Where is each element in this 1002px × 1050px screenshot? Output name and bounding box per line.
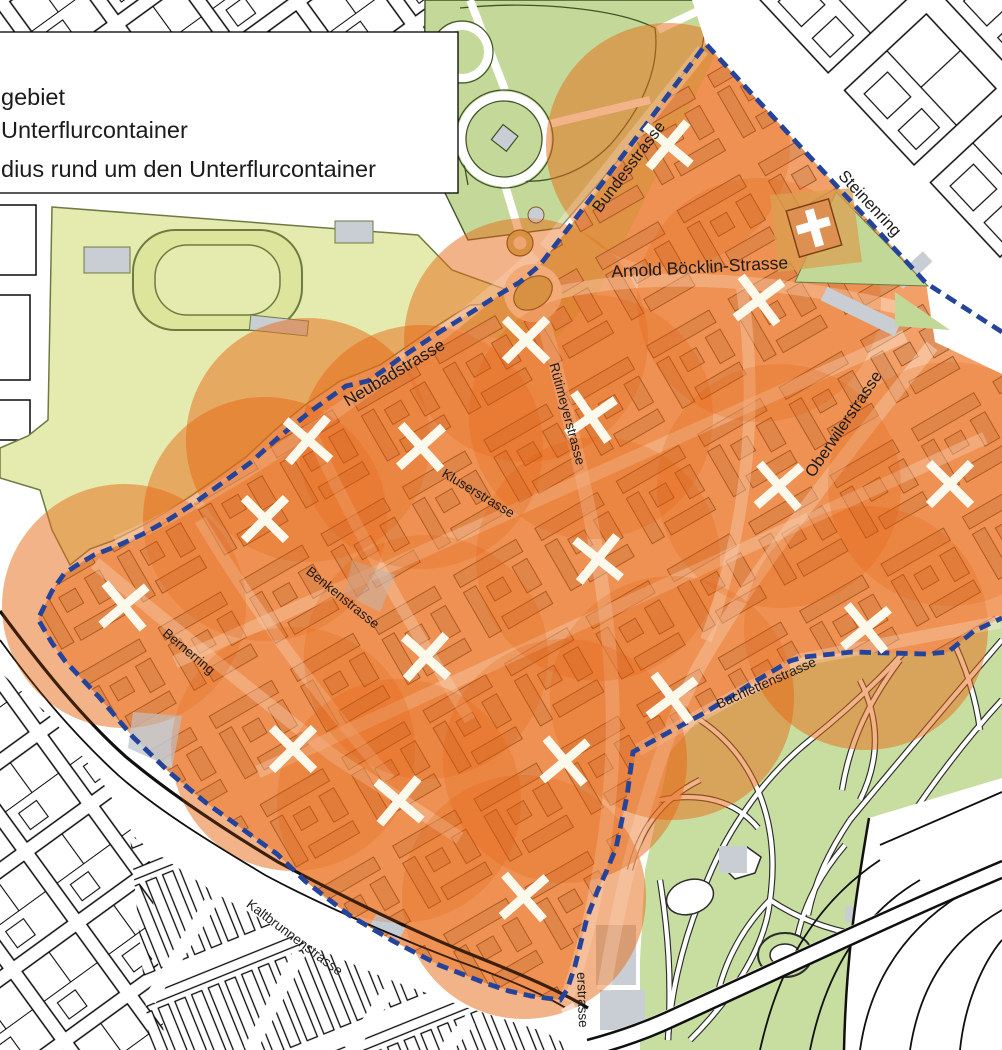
svg-text:gebiet: gebiet: [1, 84, 65, 110]
svg-text:dius rund um den Unterflurcont: dius rund um den Unterflurcontainer: [1, 156, 376, 182]
svg-text:erstrasse: erstrasse: [574, 972, 591, 1028]
svg-text:Unterflurcontainer: Unterflurcontainer: [1, 117, 188, 143]
